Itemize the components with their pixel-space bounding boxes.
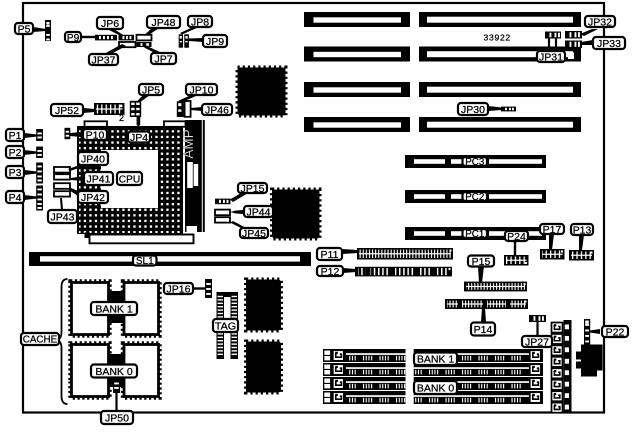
svg-text:BANK 1: BANK 1 xyxy=(417,354,455,366)
svg-text:P11: P11 xyxy=(321,249,339,261)
svg-text:P5: P5 xyxy=(18,23,31,35)
svg-text:JP15: JP15 xyxy=(241,183,265,195)
svg-text:JP32: JP32 xyxy=(588,16,612,28)
svg-text:JP42: JP42 xyxy=(81,192,105,204)
svg-text:JP16: JP16 xyxy=(167,283,191,295)
svg-text:P10: P10 xyxy=(86,129,105,141)
svg-text:BANK 0: BANK 0 xyxy=(417,382,455,394)
svg-text:JP5: JP5 xyxy=(142,84,160,96)
svg-text:BANK 1: BANK 1 xyxy=(95,303,133,315)
svg-text:P4: P4 xyxy=(9,192,22,204)
svg-text:JP46: JP46 xyxy=(205,104,229,116)
svg-text:JP37: JP37 xyxy=(92,54,116,66)
svg-text:P2: P2 xyxy=(9,147,22,159)
svg-text:JP9: JP9 xyxy=(206,36,224,48)
svg-text:P12: P12 xyxy=(321,266,340,278)
svg-text:BANK 0: BANK 0 xyxy=(95,366,133,378)
svg-text:P24: P24 xyxy=(507,231,526,243)
svg-text:JP10: JP10 xyxy=(190,84,214,96)
svg-text:JP50: JP50 xyxy=(105,412,129,424)
svg-text:JP30: JP30 xyxy=(461,104,485,116)
svg-text:JP31: JP31 xyxy=(539,51,563,63)
svg-text:P14: P14 xyxy=(474,324,493,336)
svg-text:CACHE: CACHE xyxy=(23,335,58,346)
svg-text:P13: P13 xyxy=(573,224,592,236)
svg-text:JP41: JP41 xyxy=(87,173,111,185)
svg-text:P15: P15 xyxy=(472,256,491,268)
svg-text:PC2: PC2 xyxy=(465,192,484,203)
svg-text:P17: P17 xyxy=(543,224,562,236)
svg-text:SL1: SL1 xyxy=(136,256,154,267)
svg-text:AMP: AMP xyxy=(181,129,196,158)
svg-text:P22: P22 xyxy=(606,326,625,338)
svg-text:PC1: PC1 xyxy=(465,229,484,240)
svg-text:JP33: JP33 xyxy=(597,38,621,50)
svg-text:JP6: JP6 xyxy=(101,18,119,30)
svg-text:JP48: JP48 xyxy=(152,17,176,29)
svg-text:JP44: JP44 xyxy=(247,206,271,218)
svg-text:JP43: JP43 xyxy=(51,211,75,223)
svg-text:JP52: JP52 xyxy=(55,105,79,117)
svg-text:JP27: JP27 xyxy=(525,336,549,348)
svg-text:2: 2 xyxy=(119,113,124,123)
svg-text:33922: 33922 xyxy=(484,33,511,43)
svg-text:TAG: TAG xyxy=(215,320,237,332)
svg-text:JP45: JP45 xyxy=(242,228,266,240)
svg-text:P3: P3 xyxy=(9,167,22,179)
svg-text:CPU: CPU xyxy=(119,173,141,185)
svg-text:JP4: JP4 xyxy=(130,132,148,144)
svg-text:JP40: JP40 xyxy=(81,153,105,165)
svg-text:JP7: JP7 xyxy=(154,53,172,65)
svg-text:JP8: JP8 xyxy=(191,16,209,28)
svg-text:P1: P1 xyxy=(9,130,22,142)
svg-text:P9: P9 xyxy=(67,32,80,44)
svg-text:PC3: PC3 xyxy=(465,157,485,168)
